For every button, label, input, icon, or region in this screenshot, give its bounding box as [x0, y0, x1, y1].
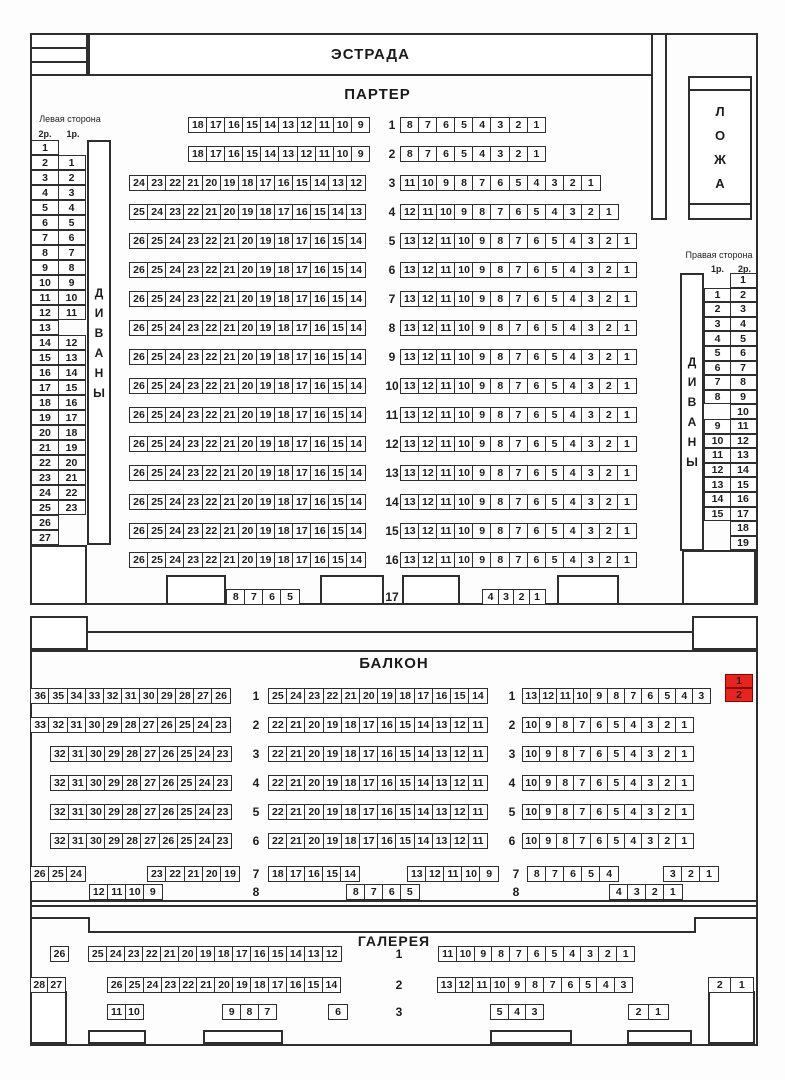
- seat[interactable]: 17: [292, 262, 312, 278]
- seat[interactable]: 21: [202, 204, 222, 220]
- seat[interactable]: 9: [472, 291, 492, 307]
- seat[interactable]: 4: [624, 746, 643, 762]
- seat[interactable]: 19: [730, 536, 757, 551]
- seat[interactable]: 4: [563, 494, 583, 510]
- seat[interactable]: 7: [244, 589, 264, 605]
- seat[interactable]: 5: [454, 146, 474, 162]
- seat[interactable]: 10: [125, 1004, 144, 1020]
- seat[interactable]: 5: [581, 866, 601, 882]
- seat[interactable]: 16: [310, 320, 330, 336]
- seat[interactable]: 3: [581, 523, 601, 539]
- seat[interactable]: 22: [183, 204, 203, 220]
- seat[interactable]: 10: [333, 146, 353, 162]
- seat[interactable]: 10: [454, 407, 474, 423]
- seat[interactable]: 15: [242, 146, 262, 162]
- seat[interactable]: 3: [581, 436, 601, 452]
- seat-selected[interactable]: 2: [725, 688, 753, 702]
- seat[interactable]: 22: [202, 233, 222, 249]
- seat[interactable]: 26: [159, 804, 179, 820]
- seat[interactable]: 8: [490, 436, 510, 452]
- seat[interactable]: 3: [641, 804, 660, 820]
- seat[interactable]: 2: [599, 349, 619, 365]
- seat[interactable]: 3: [581, 494, 601, 510]
- seat[interactable]: 7: [418, 117, 438, 133]
- seat[interactable]: 5: [454, 117, 474, 133]
- seat[interactable]: 34: [67, 688, 87, 704]
- seat[interactable]: 8: [730, 375, 757, 390]
- seat[interactable]: 11: [418, 204, 438, 220]
- seat[interactable]: 7: [58, 245, 86, 260]
- seat[interactable]: 33: [85, 688, 105, 704]
- seat[interactable]: 15: [395, 804, 415, 820]
- seat[interactable]: 15: [328, 378, 348, 394]
- seat[interactable]: 23: [183, 523, 203, 539]
- seat[interactable]: 1: [617, 494, 637, 510]
- seat[interactable]: 27: [140, 804, 160, 820]
- seat[interactable]: 13: [437, 977, 456, 993]
- seat[interactable]: 4: [624, 833, 643, 849]
- seat[interactable]: 3: [490, 117, 510, 133]
- seat[interactable]: 9: [472, 262, 492, 278]
- seat[interactable]: 16: [377, 833, 397, 849]
- seat[interactable]: 32: [103, 688, 123, 704]
- seat[interactable]: 22: [268, 775, 288, 791]
- seat[interactable]: 1: [663, 884, 683, 900]
- seat[interactable]: 7: [509, 465, 529, 481]
- seat[interactable]: 8: [346, 884, 366, 900]
- seat[interactable]: 19: [31, 410, 59, 425]
- seat[interactable]: 7: [573, 775, 592, 791]
- seat[interactable]: 4: [599, 866, 619, 882]
- seat[interactable]: 9: [539, 746, 558, 762]
- seat[interactable]: 5: [704, 346, 731, 361]
- seat[interactable]: 1: [617, 291, 637, 307]
- seat[interactable]: 4: [609, 884, 629, 900]
- seat[interactable]: 22: [202, 465, 222, 481]
- seat[interactable]: 22: [202, 494, 222, 510]
- seat[interactable]: 26: [129, 233, 149, 249]
- seat[interactable]: 10: [454, 523, 474, 539]
- seat[interactable]: 14: [414, 746, 434, 762]
- seat[interactable]: 25: [147, 378, 167, 394]
- seat[interactable]: 26: [159, 746, 179, 762]
- seat[interactable]: 6: [590, 804, 609, 820]
- seat[interactable]: 19: [58, 440, 86, 455]
- seat[interactable]: 11: [436, 407, 456, 423]
- seat[interactable]: 2: [658, 746, 677, 762]
- seat[interactable]: 17: [359, 804, 379, 820]
- seat[interactable]: 22: [202, 291, 222, 307]
- seat[interactable]: 28: [30, 977, 49, 993]
- seat[interactable]: 26: [211, 688, 231, 704]
- seat[interactable]: 22: [58, 485, 86, 500]
- seat[interactable]: 14: [414, 717, 434, 733]
- seat[interactable]: 11: [468, 833, 488, 849]
- seat[interactable]: 8: [490, 262, 510, 278]
- seat[interactable]: 26: [129, 291, 149, 307]
- seat[interactable]: 1: [617, 523, 637, 539]
- seat[interactable]: 19: [256, 407, 276, 423]
- seat[interactable]: 4: [563, 320, 583, 336]
- seat[interactable]: 11: [436, 262, 456, 278]
- seat[interactable]: 18: [274, 494, 294, 510]
- seat[interactable]: 4: [508, 1004, 527, 1020]
- seat[interactable]: 17: [292, 436, 312, 452]
- seat[interactable]: 5: [545, 291, 565, 307]
- seat[interactable]: 16: [310, 378, 330, 394]
- seat[interactable]: 6: [527, 465, 547, 481]
- seat[interactable]: 22: [202, 320, 222, 336]
- seat[interactable]: 3: [580, 946, 599, 962]
- seat[interactable]: 17: [359, 746, 379, 762]
- seat[interactable]: 12: [418, 233, 438, 249]
- seat[interactable]: 17: [58, 410, 86, 425]
- seat[interactable]: 21: [286, 833, 306, 849]
- seat[interactable]: 12: [418, 407, 438, 423]
- seat[interactable]: 20: [238, 320, 258, 336]
- seat[interactable]: 3: [581, 378, 601, 394]
- seat[interactable]: 18: [341, 717, 361, 733]
- seat[interactable]: 19: [238, 204, 258, 220]
- seat[interactable]: 20: [238, 262, 258, 278]
- seat[interactable]: 2: [599, 407, 619, 423]
- seat[interactable]: 15: [328, 465, 348, 481]
- seat[interactable]: 24: [165, 407, 185, 423]
- seat[interactable]: 18: [214, 946, 234, 962]
- seat[interactable]: 14: [346, 233, 366, 249]
- seat[interactable]: 23: [147, 866, 167, 882]
- seat[interactable]: 16: [310, 494, 330, 510]
- seat[interactable]: 15: [322, 866, 342, 882]
- seat[interactable]: 5: [509, 175, 529, 191]
- seat[interactable]: 20: [304, 804, 324, 820]
- seat[interactable]: 17: [292, 523, 312, 539]
- seat[interactable]: 25: [177, 746, 197, 762]
- seat[interactable]: 3: [704, 317, 731, 332]
- seat[interactable]: 20: [58, 455, 86, 470]
- seat[interactable]: 21: [220, 465, 240, 481]
- seat[interactable]: 4: [563, 552, 583, 568]
- seat[interactable]: 9: [472, 320, 492, 336]
- seat[interactable]: 12: [418, 436, 438, 452]
- seat[interactable]: 4: [563, 291, 583, 307]
- seat[interactable]: 5: [545, 233, 565, 249]
- seat[interactable]: 1: [616, 946, 635, 962]
- seat[interactable]: 13: [400, 552, 420, 568]
- seat[interactable]: 23: [183, 349, 203, 365]
- seat[interactable]: 20: [238, 494, 258, 510]
- seat[interactable]: 19: [323, 804, 343, 820]
- seat[interactable]: 22: [268, 804, 288, 820]
- seat[interactable]: 12: [418, 552, 438, 568]
- seat[interactable]: 17: [292, 320, 312, 336]
- seat[interactable]: 5: [607, 804, 626, 820]
- seat[interactable]: 5: [730, 331, 757, 346]
- seat[interactable]: 24: [195, 746, 215, 762]
- seat[interactable]: 13: [432, 746, 452, 762]
- seat[interactable]: 15: [395, 833, 415, 849]
- seat[interactable]: 10: [461, 866, 481, 882]
- seat[interactable]: 6: [527, 552, 547, 568]
- seat[interactable]: 24: [195, 833, 215, 849]
- seat[interactable]: 13: [58, 350, 86, 365]
- seat[interactable]: 7: [730, 361, 757, 376]
- seat[interactable]: 22: [31, 455, 59, 470]
- seat[interactable]: 12: [400, 204, 420, 220]
- seat[interactable]: 4: [563, 523, 583, 539]
- seat[interactable]: 4: [563, 465, 583, 481]
- seat[interactable]: 12: [89, 884, 109, 900]
- seat[interactable]: 3: [641, 746, 660, 762]
- seat[interactable]: 15: [395, 717, 415, 733]
- seat[interactable]: 26: [129, 494, 149, 510]
- seat[interactable]: 8: [704, 390, 731, 405]
- seat[interactable]: 14: [346, 320, 366, 336]
- seat[interactable]: 25: [147, 291, 167, 307]
- seat[interactable]: 12: [346, 175, 366, 191]
- seat[interactable]: 4: [704, 331, 731, 346]
- seat[interactable]: 19: [323, 717, 343, 733]
- seat[interactable]: 11: [436, 349, 456, 365]
- seat[interactable]: 6: [527, 494, 547, 510]
- seat[interactable]: 26: [129, 407, 149, 423]
- seat[interactable]: 12: [297, 117, 317, 133]
- seat[interactable]: 26: [129, 349, 149, 365]
- seat[interactable]: 25: [147, 262, 167, 278]
- seat[interactable]: 10: [454, 465, 474, 481]
- seat[interactable]: 9: [351, 146, 371, 162]
- seat[interactable]: 13: [328, 175, 348, 191]
- seat[interactable]: 6: [590, 746, 609, 762]
- seat[interactable]: 8: [472, 204, 492, 220]
- seat[interactable]: 13: [346, 204, 366, 220]
- seat[interactable]: 19: [232, 977, 251, 993]
- seat[interactable]: 8: [556, 746, 575, 762]
- seat[interactable]: 4: [563, 262, 583, 278]
- seat[interactable]: 1: [675, 717, 694, 733]
- seat[interactable]: 16: [730, 492, 757, 507]
- seat[interactable]: 18: [730, 521, 757, 536]
- seat[interactable]: 3: [614, 977, 633, 993]
- seat[interactable]: 21: [286, 746, 306, 762]
- seat[interactable]: 23: [147, 175, 167, 191]
- seat[interactable]: 16: [377, 804, 397, 820]
- seat[interactable]: 11: [438, 946, 457, 962]
- seat[interactable]: 25: [147, 407, 167, 423]
- seat[interactable]: 18: [274, 291, 294, 307]
- seat[interactable]: 18: [31, 395, 59, 410]
- seat[interactable]: 18: [188, 117, 208, 133]
- seat[interactable]: 9: [472, 494, 492, 510]
- seat[interactable]: 9: [436, 175, 456, 191]
- seat[interactable]: 20: [238, 349, 258, 365]
- seat[interactable]: 2: [599, 523, 619, 539]
- seat[interactable]: 21: [286, 775, 306, 791]
- seat[interactable]: 23: [213, 833, 233, 849]
- seat[interactable]: 17: [730, 507, 757, 522]
- seat[interactable]: 2: [563, 175, 583, 191]
- seat[interactable]: 4: [624, 775, 643, 791]
- seat[interactable]: 30: [86, 775, 106, 791]
- seat[interactable]: 4: [563, 436, 583, 452]
- seat[interactable]: 20: [304, 717, 324, 733]
- seat[interactable]: 16: [310, 407, 330, 423]
- seat[interactable]: 23: [183, 494, 203, 510]
- seat[interactable]: 5: [545, 262, 565, 278]
- seat[interactable]: 1: [730, 273, 757, 288]
- seat[interactable]: 19: [323, 833, 343, 849]
- seat[interactable]: 22: [165, 866, 185, 882]
- seat[interactable]: 21: [286, 804, 306, 820]
- seat[interactable]: 25: [147, 523, 167, 539]
- seat[interactable]: 17: [274, 204, 294, 220]
- seat[interactable]: 8: [454, 175, 474, 191]
- seat[interactable]: 2: [599, 494, 619, 510]
- seat[interactable]: 29: [104, 746, 124, 762]
- seat[interactable]: 15: [31, 350, 59, 365]
- seat[interactable]: 5: [607, 717, 626, 733]
- seat[interactable]: 6: [527, 378, 547, 394]
- seat[interactable]: 22: [165, 175, 185, 191]
- seat[interactable]: 23: [183, 407, 203, 423]
- seat[interactable]: 14: [704, 492, 731, 507]
- seat[interactable]: 3: [58, 185, 86, 200]
- seat[interactable]: 7: [509, 291, 529, 307]
- seat[interactable]: 17: [292, 494, 312, 510]
- seat[interactable]: 20: [359, 688, 379, 704]
- seat[interactable]: 8: [31, 245, 59, 260]
- seat[interactable]: 9: [143, 884, 163, 900]
- seat[interactable]: 3: [627, 884, 647, 900]
- seat[interactable]: 7: [472, 175, 492, 191]
- seat[interactable]: 6: [382, 884, 402, 900]
- seat[interactable]: 9: [472, 436, 492, 452]
- seat[interactable]: 7: [509, 407, 529, 423]
- seat[interactable]: 8: [556, 833, 575, 849]
- seat[interactable]: 24: [286, 688, 306, 704]
- seat[interactable]: 21: [220, 262, 240, 278]
- seat[interactable]: 1: [599, 204, 619, 220]
- seat[interactable]: 24: [165, 552, 185, 568]
- seat[interactable]: 8: [556, 717, 575, 733]
- seat[interactable]: 26: [129, 320, 149, 336]
- seat[interactable]: 12: [297, 146, 317, 162]
- seat[interactable]: 18: [274, 262, 294, 278]
- seat[interactable]: 13: [432, 775, 452, 791]
- seat[interactable]: 29: [103, 717, 123, 733]
- seat[interactable]: 20: [202, 175, 222, 191]
- seat[interactable]: 11: [436, 552, 456, 568]
- seat[interactable]: 14: [31, 335, 59, 350]
- seat[interactable]: 31: [68, 833, 88, 849]
- seat[interactable]: 17: [286, 866, 306, 882]
- seat[interactable]: 14: [260, 117, 280, 133]
- seat[interactable]: 9: [590, 688, 609, 704]
- seat[interactable]: 15: [328, 407, 348, 423]
- seat[interactable]: 10: [730, 404, 757, 419]
- seat[interactable]: 11: [468, 746, 488, 762]
- seat[interactable]: 29: [104, 775, 124, 791]
- seat[interactable]: 25: [147, 465, 167, 481]
- seat[interactable]: 8: [58, 260, 86, 275]
- seat[interactable]: 7: [509, 378, 529, 394]
- seat[interactable]: 18: [274, 465, 294, 481]
- seat[interactable]: 6: [561, 977, 580, 993]
- seat[interactable]: 10: [454, 494, 474, 510]
- seat[interactable]: 20: [238, 552, 258, 568]
- seat[interactable]: 4: [675, 688, 694, 704]
- seat[interactable]: 25: [125, 977, 144, 993]
- seat[interactable]: 25: [48, 866, 68, 882]
- seat[interactable]: 10: [454, 349, 474, 365]
- seat[interactable]: 20: [238, 378, 258, 394]
- seat[interactable]: 11: [436, 291, 456, 307]
- seat[interactable]: 7: [509, 946, 528, 962]
- seat[interactable]: 4: [482, 589, 499, 605]
- seat[interactable]: 23: [213, 775, 233, 791]
- seat[interactable]: 24: [193, 717, 213, 733]
- seat[interactable]: 4: [563, 233, 583, 249]
- seat[interactable]: 1: [617, 262, 637, 278]
- seat[interactable]: 25: [177, 833, 197, 849]
- seat[interactable]: 6: [527, 233, 547, 249]
- seat[interactable]: 18: [58, 425, 86, 440]
- seat[interactable]: 23: [124, 946, 144, 962]
- seat[interactable]: 23: [213, 804, 233, 820]
- seat[interactable]: 3: [663, 866, 683, 882]
- seat[interactable]: 14: [346, 494, 366, 510]
- seat[interactable]: 18: [341, 804, 361, 820]
- seat[interactable]: 6: [436, 117, 456, 133]
- seat[interactable]: 15: [328, 320, 348, 336]
- seat[interactable]: 15: [450, 688, 470, 704]
- seat[interactable]: 8: [490, 407, 510, 423]
- seat[interactable]: 11: [436, 233, 456, 249]
- seat[interactable]: 3: [581, 552, 601, 568]
- seat[interactable]: 33: [30, 717, 50, 733]
- seat[interactable]: 18: [341, 775, 361, 791]
- seat[interactable]: 1: [675, 804, 694, 820]
- seat[interactable]: 4: [563, 349, 583, 365]
- seat[interactable]: 11: [436, 494, 456, 510]
- seat[interactable]: 26: [129, 523, 149, 539]
- seat[interactable]: 20: [304, 833, 324, 849]
- seat[interactable]: 21: [220, 291, 240, 307]
- seat[interactable]: 8: [556, 804, 575, 820]
- seat[interactable]: 8: [491, 946, 510, 962]
- seat[interactable]: 18: [341, 833, 361, 849]
- seat[interactable]: 3: [525, 1004, 544, 1020]
- seat[interactable]: 21: [31, 440, 59, 455]
- seat[interactable]: 16: [274, 175, 294, 191]
- seat[interactable]: 13: [400, 407, 420, 423]
- seat[interactable]: 12: [418, 378, 438, 394]
- seat[interactable]: 18: [274, 407, 294, 423]
- seat[interactable]: 5: [545, 552, 565, 568]
- seat[interactable]: 16: [224, 117, 244, 133]
- seat[interactable]: 9: [472, 552, 492, 568]
- seat[interactable]: 14: [286, 946, 306, 962]
- seat[interactable]: 3: [581, 291, 601, 307]
- seat[interactable]: 30: [86, 746, 106, 762]
- seat[interactable]: 22: [268, 717, 288, 733]
- seat[interactable]: 5: [545, 436, 565, 452]
- seat[interactable]: 9: [472, 465, 492, 481]
- seat[interactable]: 4: [545, 204, 565, 220]
- seat[interactable]: 14: [414, 833, 434, 849]
- seat[interactable]: 22: [323, 688, 343, 704]
- seat[interactable]: 13: [730, 448, 757, 463]
